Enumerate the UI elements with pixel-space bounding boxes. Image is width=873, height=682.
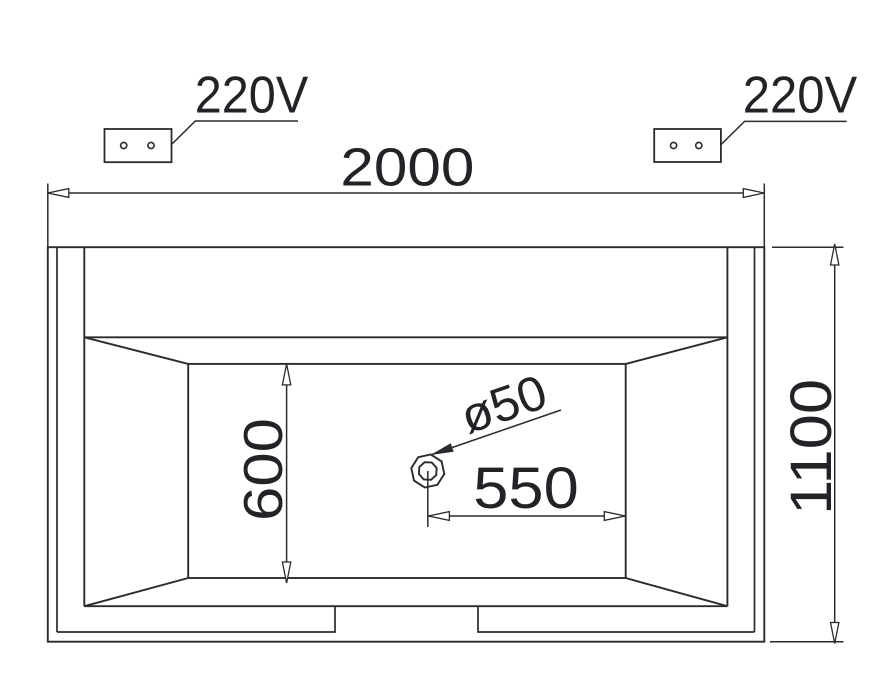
svg-text:1100: 1100 <box>779 379 844 515</box>
svg-text:2000: 2000 <box>340 138 474 198</box>
svg-text:220V: 220V <box>743 66 858 124</box>
svg-text:550: 550 <box>473 456 579 521</box>
svg-text:220V: 220V <box>195 66 309 124</box>
svg-text:600: 600 <box>232 418 294 521</box>
